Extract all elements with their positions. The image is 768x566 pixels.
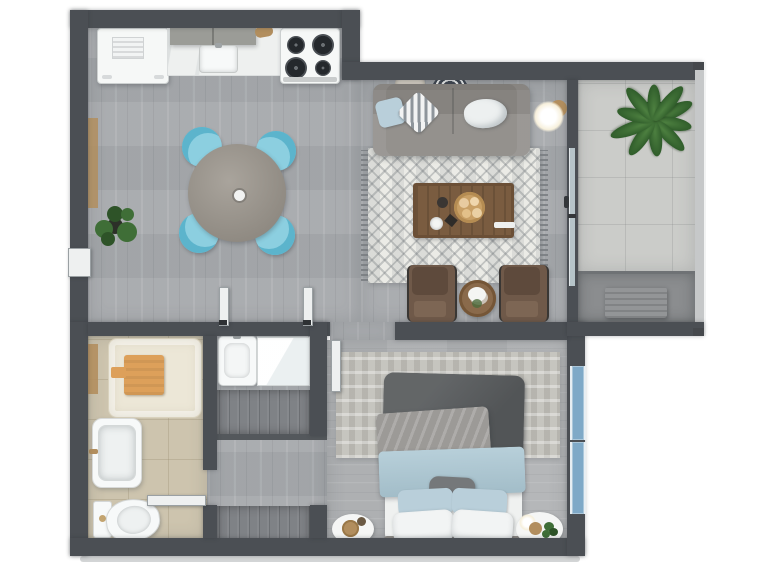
bathroom-door-leaf-open — [147, 495, 206, 506]
rug-fringe-right — [540, 150, 548, 281]
wall-shelf-wood — [88, 118, 98, 208]
upper-cabinets — [170, 28, 256, 45]
plant-leaf — [117, 222, 137, 242]
refrigerator — [97, 28, 169, 84]
wall-bottom — [70, 538, 585, 556]
sliding-door-divider — [568, 214, 576, 218]
plant-leaf — [121, 208, 134, 221]
armchair-back-cushion — [412, 267, 448, 295]
wall-bathroom-inner — [203, 336, 217, 470]
door-hinge-a — [219, 320, 227, 325]
wardrobe — [217, 390, 310, 434]
bedroom-window-lower — [570, 442, 586, 514]
wall-post-vanity-right — [310, 322, 327, 436]
stove-burner-2 — [312, 34, 334, 56]
bedroom-door-leaf-open — [331, 340, 341, 392]
rug-fringe-left — [361, 150, 368, 281]
floor-plan-canvas — [0, 0, 768, 566]
wall-left-upper — [70, 10, 88, 248]
ac-condenser-unit — [605, 287, 667, 318]
coffee-table — [413, 183, 514, 238]
nightstand-plant-leaf — [542, 530, 550, 538]
utility-divider-line — [578, 271, 695, 274]
bathtub-basin — [98, 425, 136, 481]
bread-item — [472, 208, 482, 218]
stove-burner-4 — [315, 60, 331, 76]
railing-post-top — [693, 62, 704, 70]
wall-post-closet-right — [310, 505, 327, 538]
nightstand-plant-leaf — [549, 528, 558, 536]
balcony-plant — [600, 78, 710, 170]
entry-door — [68, 248, 91, 277]
dining-plant — [93, 200, 141, 250]
wall-top-living-balcony — [342, 62, 703, 80]
fridge-vent-grille — [112, 37, 144, 59]
bread-item — [462, 209, 471, 218]
armchair-right — [499, 265, 549, 322]
armchair-left — [407, 265, 457, 322]
sliding-door-handle — [564, 196, 569, 208]
candle — [430, 217, 443, 230]
wardrobe-base-line — [203, 434, 327, 440]
stove-burner-1 — [287, 36, 305, 54]
plant-leaf — [101, 232, 115, 246]
bread-item — [459, 198, 469, 208]
dining-table-centerpiece — [232, 188, 247, 203]
railing-post-bottom — [693, 328, 704, 336]
vanity-counter-glossy — [257, 337, 310, 386]
door-hinge-b — [303, 320, 311, 325]
bread-item — [470, 197, 479, 206]
floor-lamp-glow — [533, 101, 564, 132]
toilet-seat — [115, 504, 152, 536]
shower-towel-tab — [111, 367, 126, 378]
armchair-seat-cushion — [506, 301, 538, 317]
bathtub-faucet — [89, 449, 98, 454]
sink-faucet — [215, 43, 222, 48]
bedroom-window-upper — [570, 366, 586, 440]
stove-front-edge — [283, 77, 337, 82]
bathtub — [92, 418, 142, 488]
kitchen-sink — [199, 45, 238, 73]
armchair-seat-cushion — [414, 301, 446, 317]
wall-balcony-divider — [567, 80, 578, 322]
gas-stove — [280, 28, 340, 84]
fridge-handle — [102, 75, 112, 79]
floor-bedroom-doorway — [330, 322, 395, 340]
wall-top-bedroom — [395, 322, 567, 340]
nightstand-item-dark — [357, 517, 366, 526]
wall-balcony-right-railing — [695, 62, 706, 336]
decor-bottle — [437, 197, 448, 208]
wall-left-lower — [70, 322, 88, 556]
flower-stems — [472, 299, 482, 308]
shower-towel-orange — [124, 355, 164, 395]
fridge-handle-2 — [154, 75, 164, 79]
stove-burner-3 — [285, 57, 307, 79]
serving-tray — [454, 192, 485, 223]
armchair-back-cushion — [504, 267, 540, 295]
bedside-lamp-wood — [529, 522, 542, 535]
wall-balcony-bottom — [567, 322, 704, 336]
washbasin-bowl — [224, 343, 250, 378]
side-table-round — [459, 280, 496, 317]
washbasin — [218, 336, 257, 386]
towel-bar-wood — [88, 344, 98, 394]
dining-table — [188, 144, 286, 242]
wall-left-mid — [70, 275, 88, 322]
cabinet-split-line — [212, 28, 214, 45]
wall-divider-bathroom-top — [88, 322, 330, 336]
wall-top-kitchen — [70, 10, 360, 28]
exterior-shadow — [80, 556, 580, 562]
wall-post-closet-left — [203, 505, 217, 538]
remote — [494, 222, 515, 228]
